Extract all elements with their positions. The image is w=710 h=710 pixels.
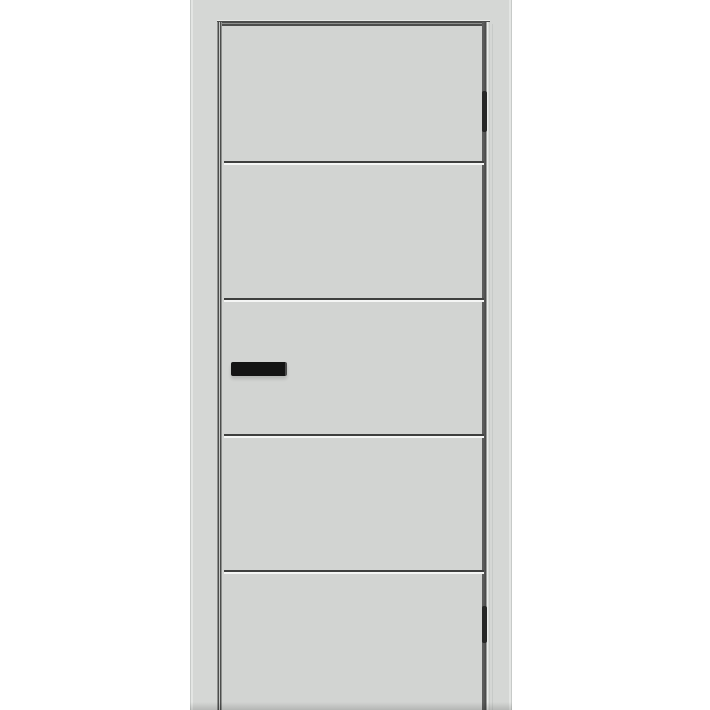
door-groove xyxy=(224,298,484,302)
photo-bottom-shadow xyxy=(190,702,512,710)
door-hinge-lower xyxy=(482,606,487,643)
door-handle xyxy=(231,362,287,376)
door-product-photo xyxy=(0,0,710,710)
door-frame-left-edge xyxy=(190,0,193,710)
door-gap-left xyxy=(217,22,222,710)
door-frame-right-seam xyxy=(492,24,493,710)
door-groove xyxy=(224,570,484,574)
door-frame-right-edge xyxy=(509,0,512,710)
door-gap-top xyxy=(217,20,490,26)
door-groove xyxy=(224,434,484,438)
door-hinge-upper xyxy=(482,91,487,132)
door-groove xyxy=(224,161,484,165)
